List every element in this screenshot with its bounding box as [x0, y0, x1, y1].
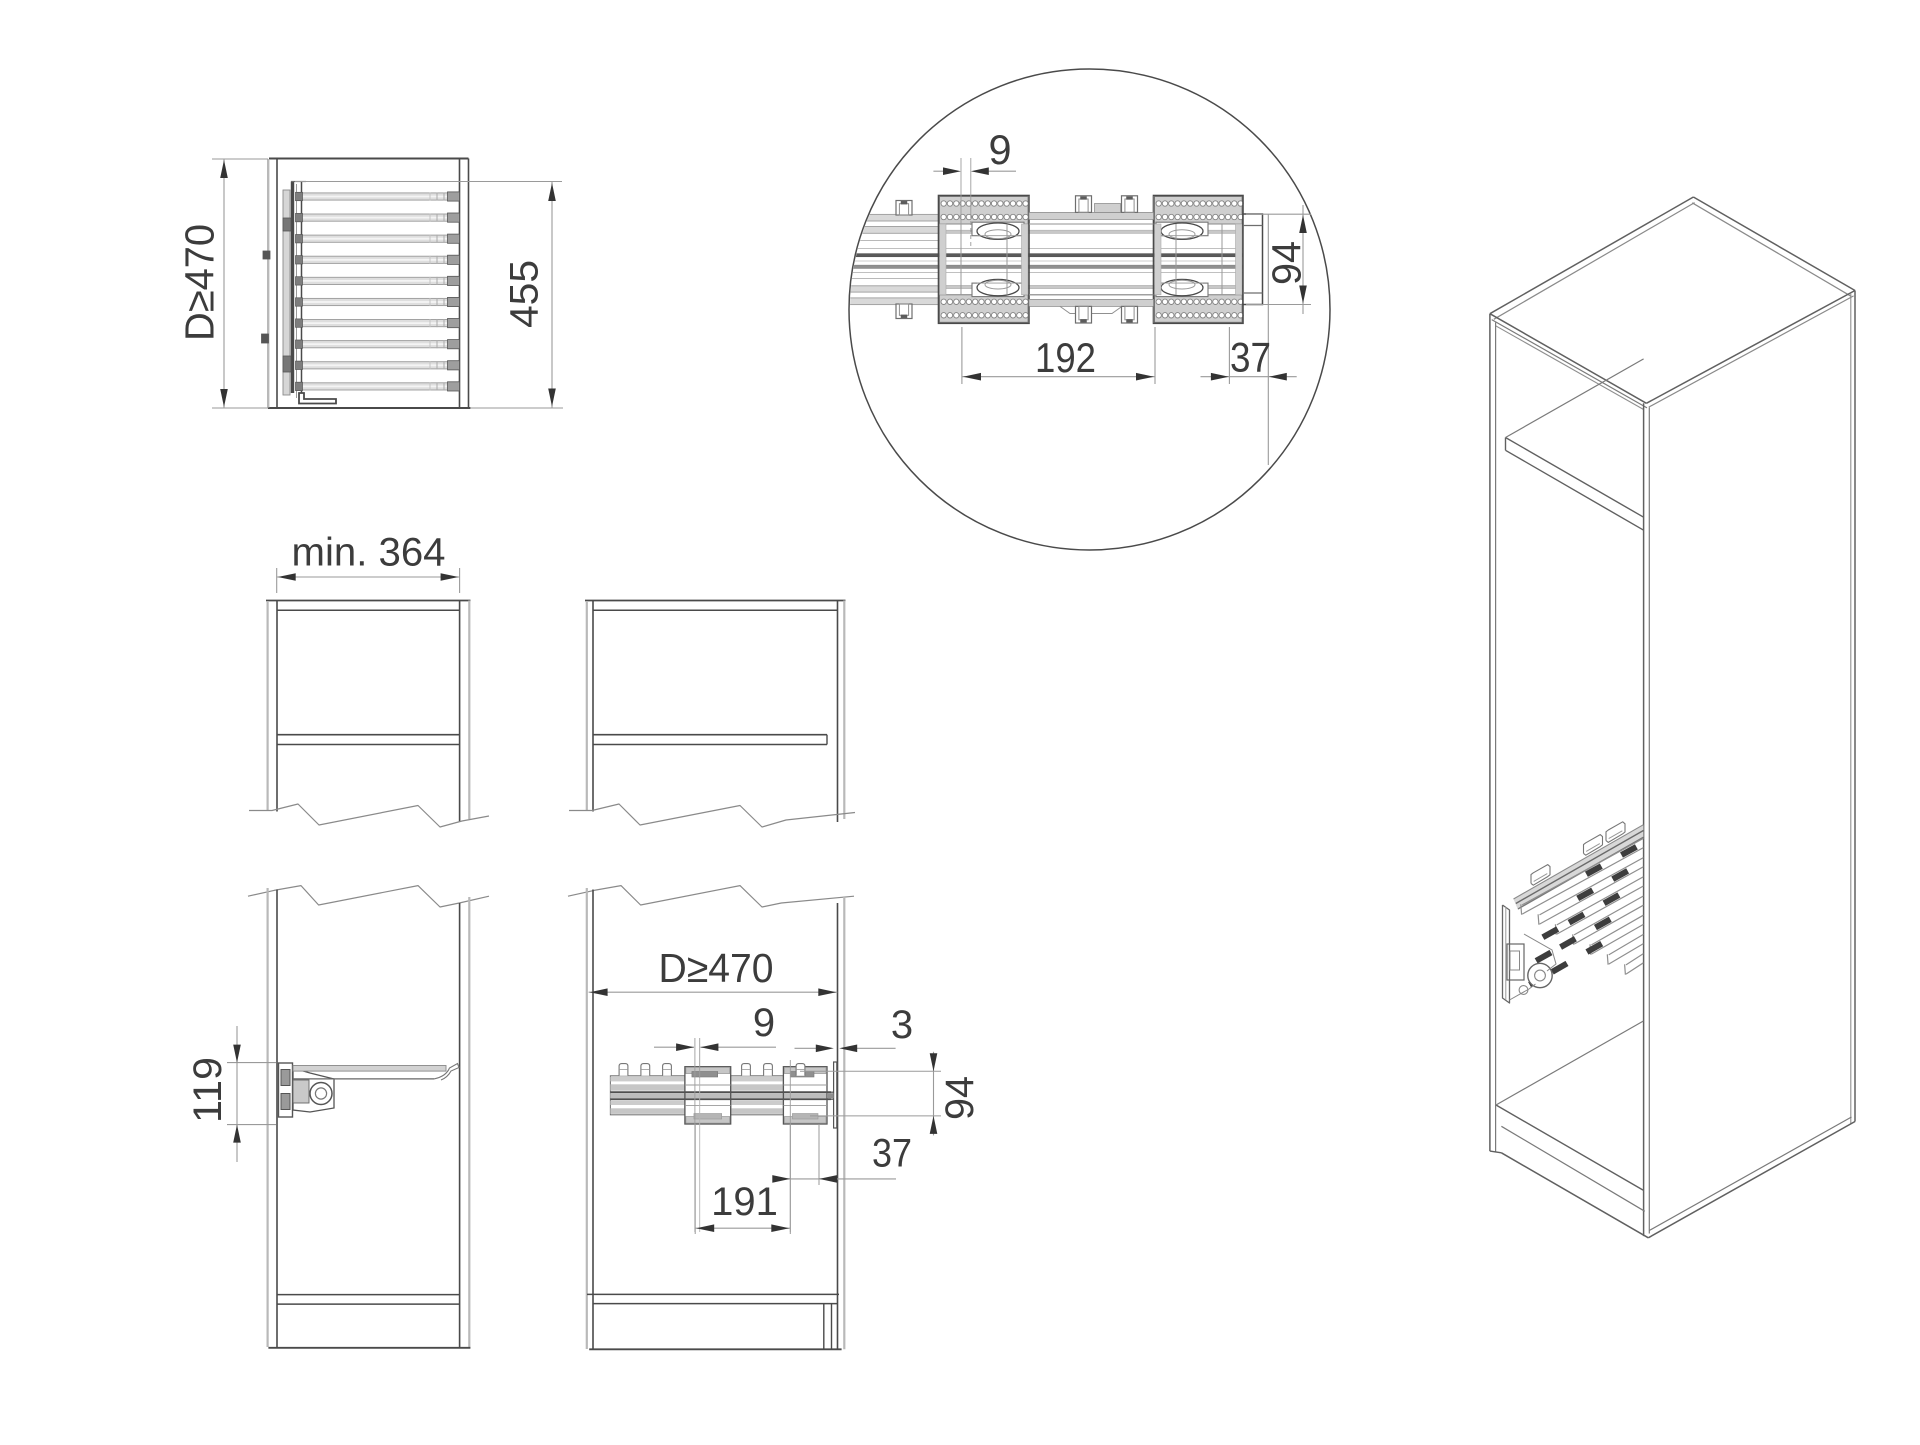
svg-text:3: 3: [891, 1003, 913, 1047]
svg-text:455: 455: [503, 260, 547, 328]
svg-text:D≥470: D≥470: [177, 224, 223, 341]
svg-text:191: 191: [711, 1180, 778, 1224]
svg-text:94: 94: [938, 1076, 982, 1120]
svg-text:37: 37: [872, 1132, 912, 1176]
svg-text:9: 9: [988, 126, 1011, 173]
svg-text:9: 9: [753, 1001, 775, 1045]
svg-text:192: 192: [1035, 334, 1096, 381]
svg-text:D≥470: D≥470: [659, 945, 774, 991]
svg-text:37: 37: [1230, 334, 1271, 381]
svg-text:119: 119: [186, 1057, 230, 1123]
svg-text:min. 364: min. 364: [292, 531, 446, 575]
svg-text:94: 94: [1264, 241, 1310, 285]
